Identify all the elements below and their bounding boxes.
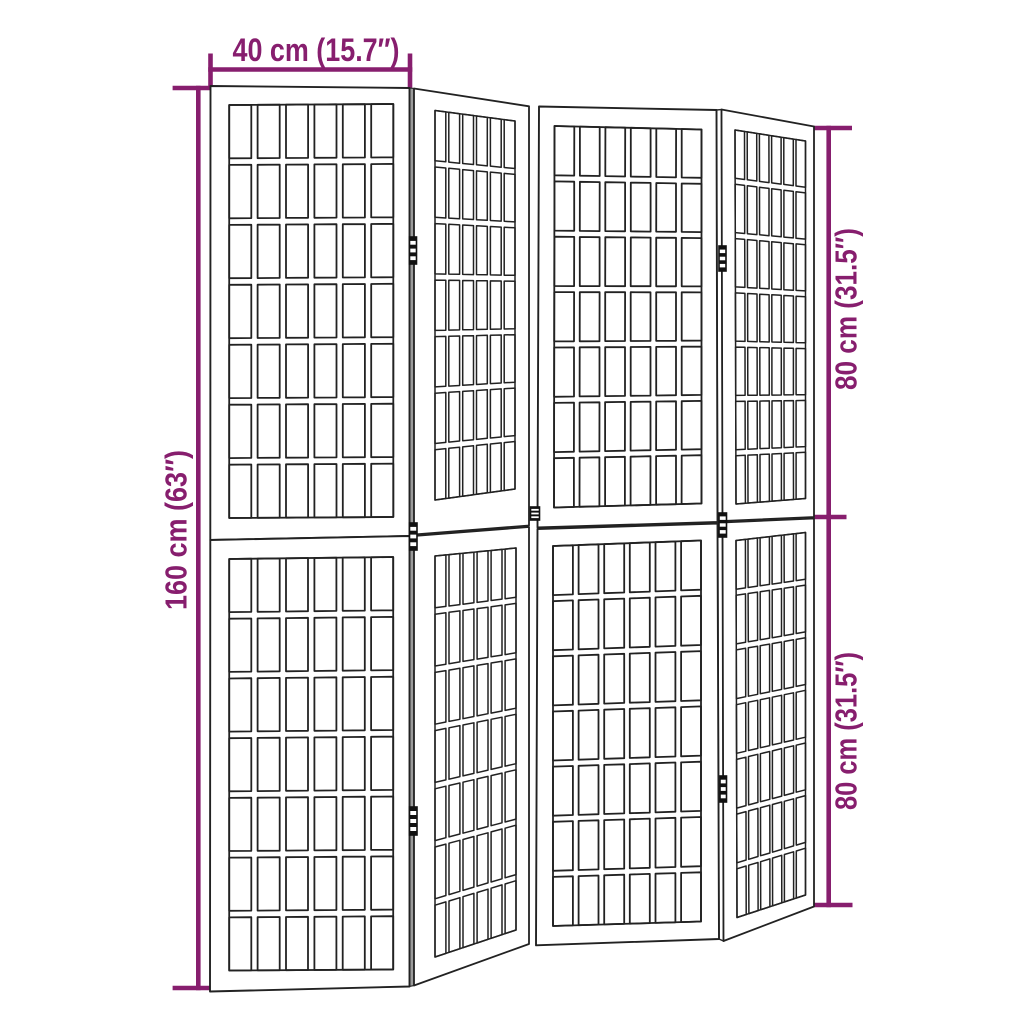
svg-text:80 cm (31.5″): 80 cm (31.5″)	[830, 652, 864, 810]
svg-text:160 cm (63″): 160 cm (63″)	[160, 450, 194, 610]
svg-text:80 cm (31.5″): 80 cm (31.5″)	[830, 228, 864, 390]
svg-text:40 cm (15.7″): 40 cm (15.7″)	[233, 32, 400, 68]
